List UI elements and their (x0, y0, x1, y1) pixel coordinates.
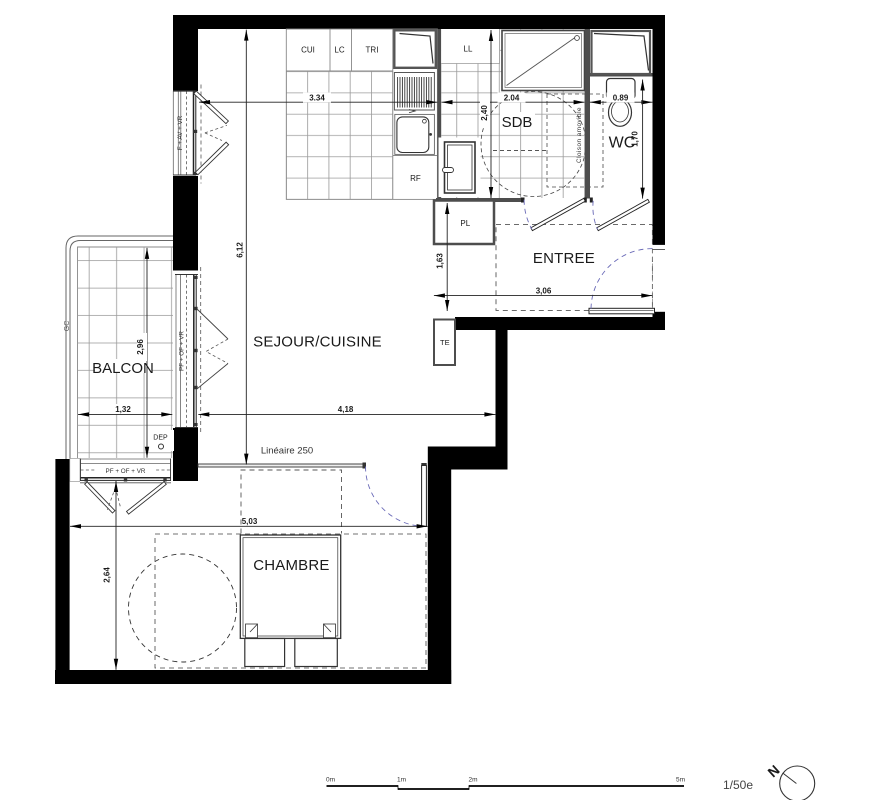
svg-text:PL: PL (460, 219, 470, 228)
svg-text:6,12: 6,12 (236, 242, 245, 258)
svg-text:1,70: 1,70 (631, 131, 640, 147)
svg-text:1,32: 1,32 (115, 405, 131, 414)
svg-text:CUI: CUI (301, 46, 315, 55)
svg-text:SDB: SDB (502, 114, 533, 131)
svg-text:GC: GC (64, 321, 71, 332)
svg-text:F + AV + VR: F + AV + VR (177, 115, 184, 150)
svg-text:1,63: 1,63 (436, 253, 445, 269)
svg-text:4,18: 4,18 (338, 405, 354, 414)
svg-text:0.89: 0.89 (613, 94, 629, 103)
svg-text:BALCON: BALCON (92, 360, 154, 377)
svg-text:LL: LL (464, 45, 473, 54)
svg-text:Cloison amovible: Cloison amovible (576, 107, 583, 163)
svg-text:CHAMBRE: CHAMBRE (253, 557, 329, 574)
svg-text:Linéaire 250: Linéaire 250 (261, 446, 313, 457)
svg-text:PF + OF + VR: PF + OF + VR (179, 331, 186, 371)
svg-text:5,03: 5,03 (242, 517, 258, 526)
svg-text:PF + OF + VR: PF + OF + VR (106, 468, 146, 475)
svg-text:2.04: 2.04 (504, 94, 520, 103)
svg-text:LC: LC (334, 46, 344, 55)
svg-text:RF: RF (410, 174, 421, 183)
svg-text:TRI: TRI (366, 46, 379, 55)
svg-text:2,96: 2,96 (136, 339, 145, 355)
svg-text:1m: 1m (397, 777, 406, 784)
svg-text:2,64: 2,64 (103, 567, 112, 583)
svg-text:3.34: 3.34 (309, 94, 325, 103)
svg-text:DEP: DEP (153, 435, 168, 442)
svg-text:5m: 5m (676, 777, 685, 784)
svg-text:0m: 0m (326, 777, 335, 784)
svg-text:1/50e: 1/50e (723, 778, 753, 792)
svg-text:2,40: 2,40 (480, 105, 489, 121)
svg-text:2m: 2m (469, 777, 478, 784)
svg-text:3,06: 3,06 (536, 286, 552, 295)
svg-text:ENTREE: ENTREE (533, 250, 595, 267)
svg-text:TE: TE (440, 338, 450, 347)
svg-text:SEJOUR/CUISINE: SEJOUR/CUISINE (253, 334, 382, 351)
